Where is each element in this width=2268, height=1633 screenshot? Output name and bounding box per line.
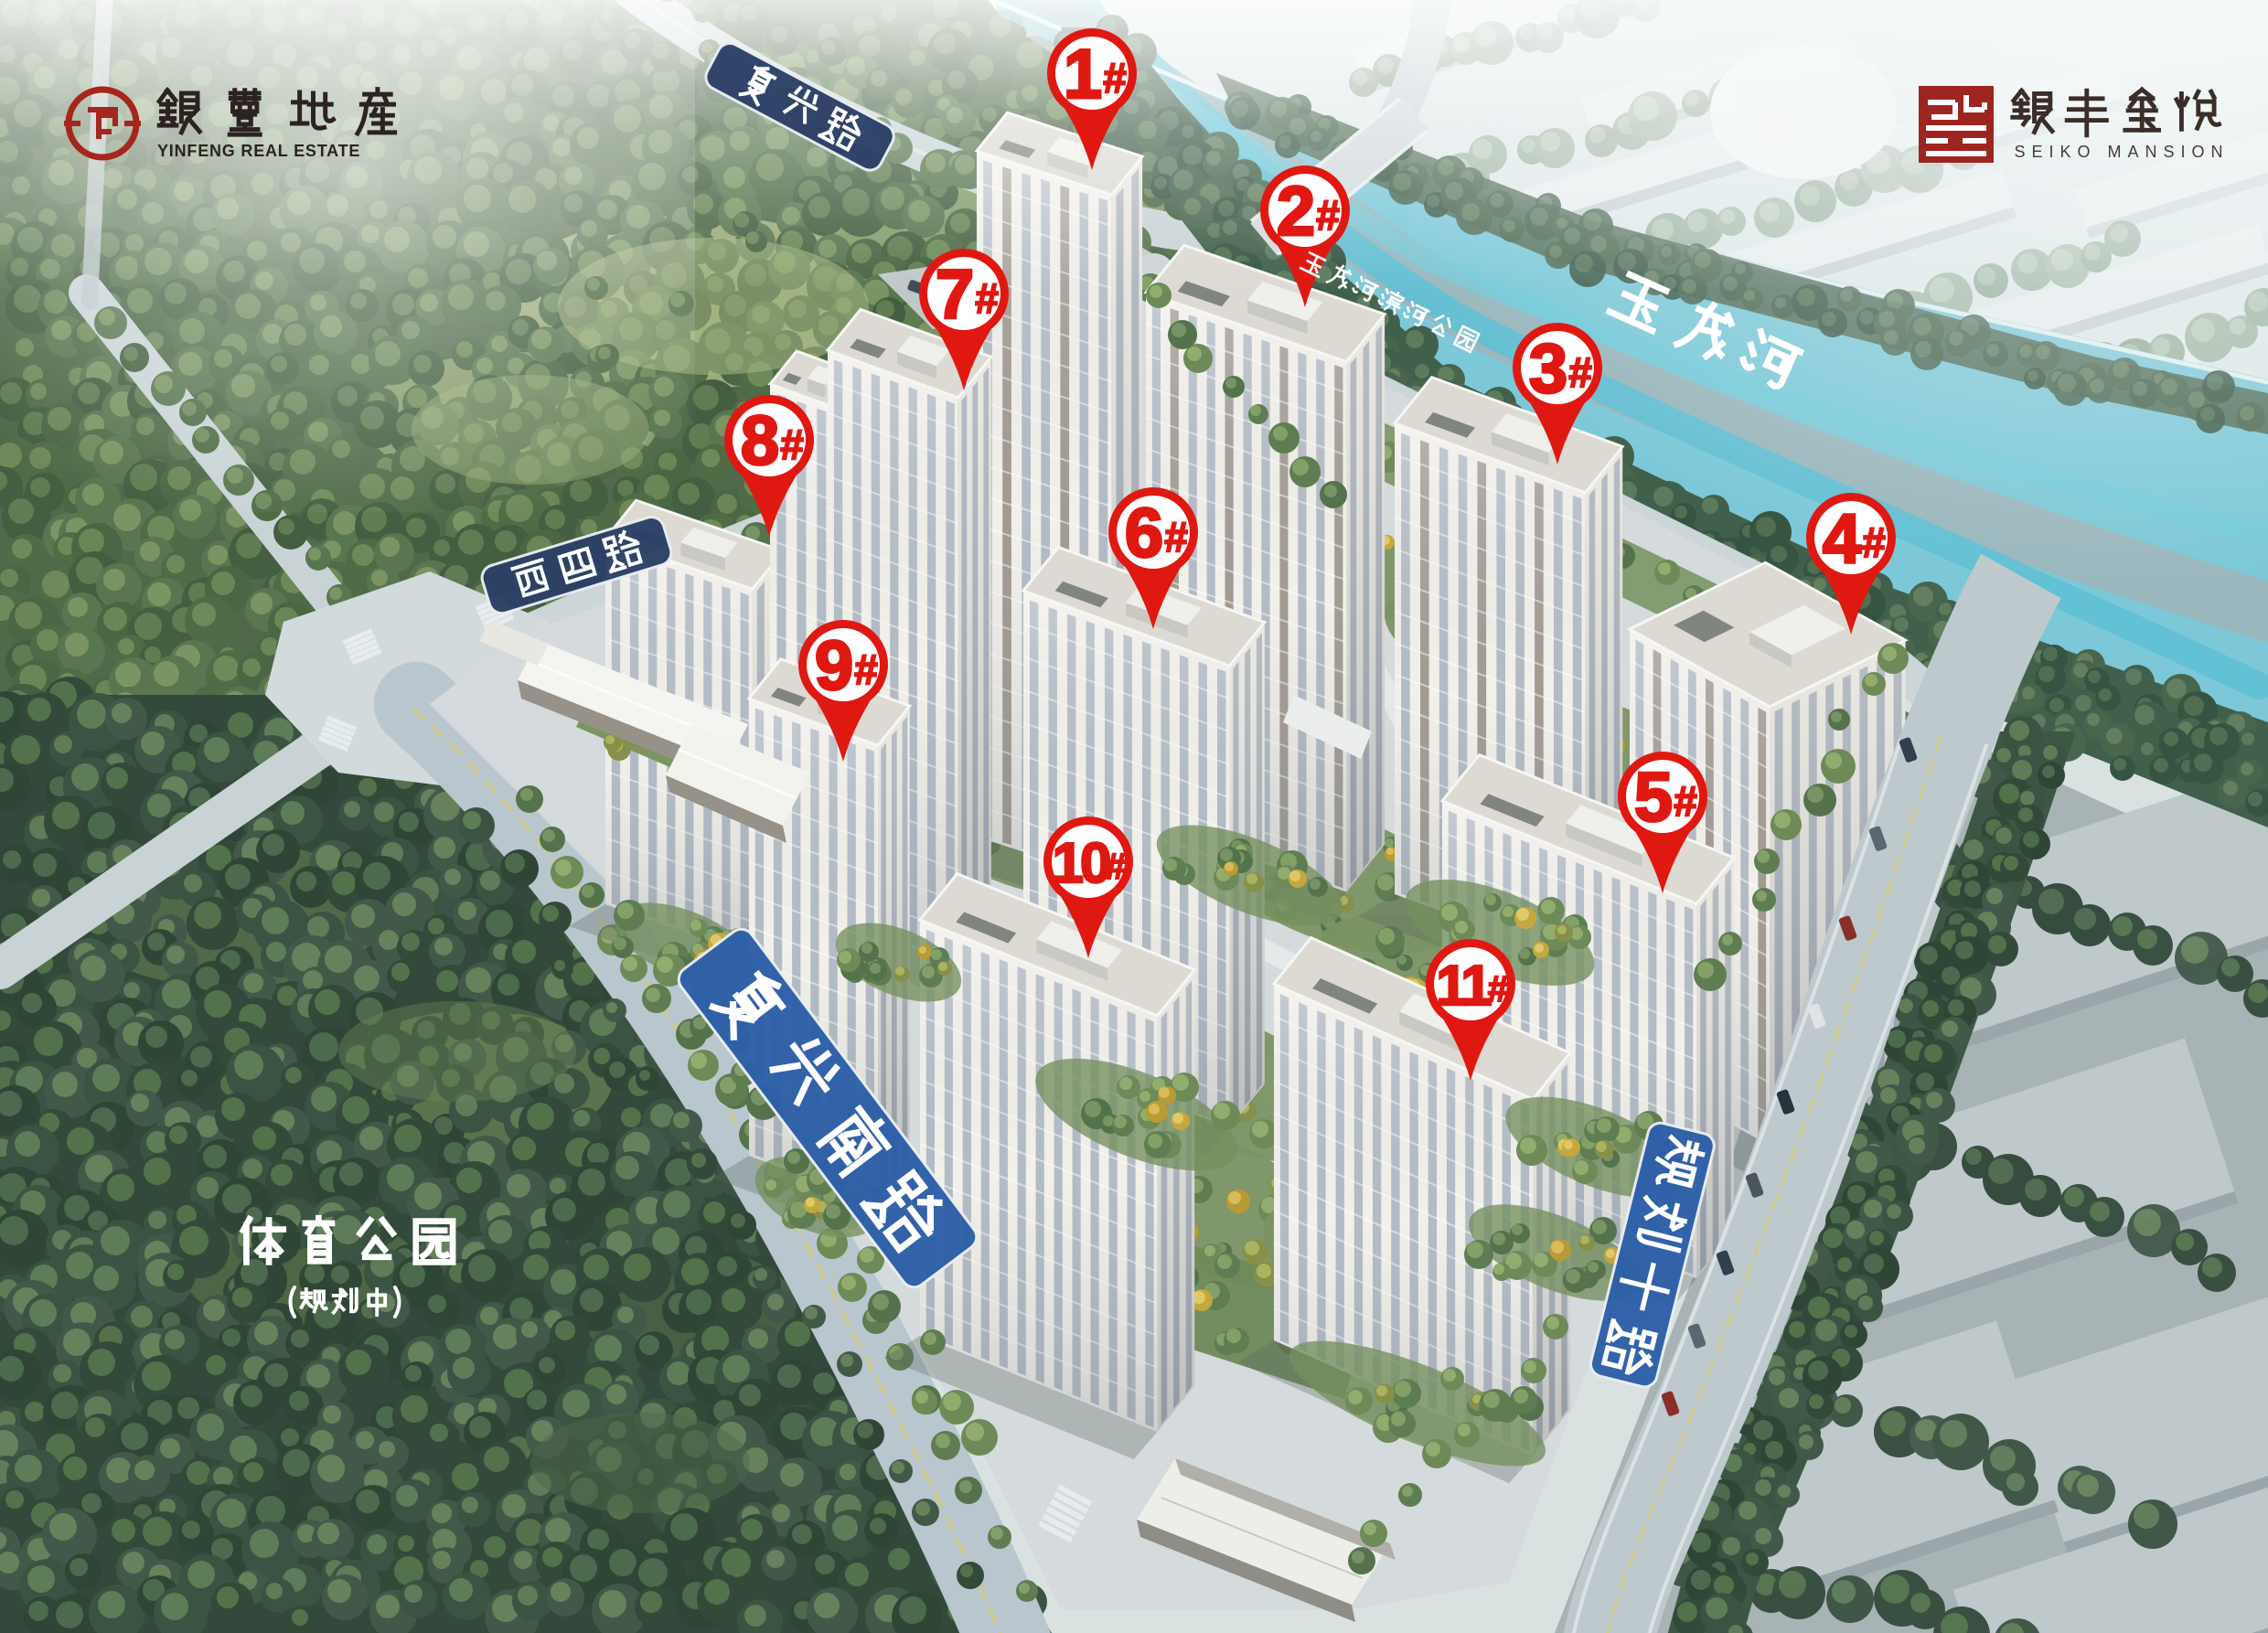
svg-text:#: # — [975, 274, 999, 322]
svg-text:#: # — [854, 646, 878, 693]
svg-text:6: 6 — [1125, 495, 1163, 572]
svg-text:2: 2 — [1277, 173, 1315, 251]
svg-text:#: # — [1164, 513, 1188, 560]
svg-text:3: 3 — [1529, 330, 1567, 408]
svg-text:1: 1 — [1064, 36, 1102, 113]
svg-text:#: # — [1316, 191, 1340, 239]
svg-text:#: # — [1106, 847, 1126, 887]
svg-text:11: 11 — [1436, 955, 1491, 1018]
svg-text:4: 4 — [1823, 500, 1861, 578]
svg-text:#: # — [780, 421, 804, 468]
svg-text:10: 10 — [1053, 832, 1109, 895]
svg-text:#: # — [1488, 969, 1508, 1009]
svg-text:#: # — [1862, 518, 1886, 566]
svg-text:8: 8 — [741, 402, 779, 480]
svg-text:9: 9 — [815, 627, 853, 705]
svg-text:5: 5 — [1634, 759, 1673, 837]
svg-text:#: # — [1103, 54, 1127, 101]
svg-text:#: # — [1568, 348, 1592, 396]
svg-text:7: 7 — [936, 256, 974, 334]
svg-text:SEIKO MANSION: SEIKO MANSION — [2014, 143, 2229, 161]
svg-text:YINFENG REAL ESTATE: YINFENG REAL ESTATE — [157, 142, 360, 160]
svg-text:#: # — [1674, 777, 1697, 825]
